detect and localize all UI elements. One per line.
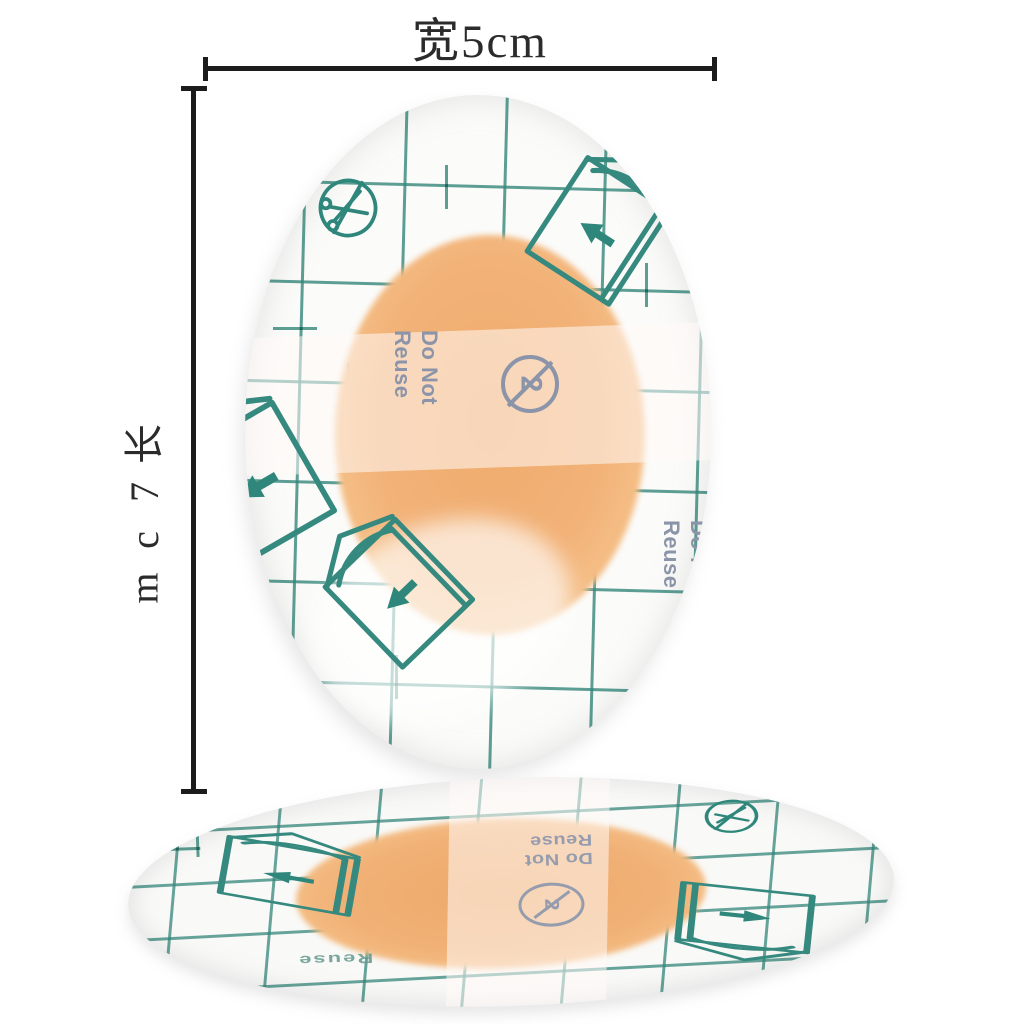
length-label-char: c bbox=[121, 531, 169, 549]
no-scissors-icon bbox=[697, 794, 766, 838]
do-not-reuse-line1: Do Not bbox=[416, 330, 443, 430]
no-reuse-slash bbox=[533, 890, 570, 919]
do-not-reuse-line2: Reuse bbox=[658, 520, 685, 620]
grid-tick bbox=[645, 263, 648, 307]
do-not-reuse-line2: Reuse bbox=[492, 830, 593, 852]
dressing-front: Do Not Reuse 2 Do Not Reuse bbox=[245, 95, 711, 769]
peel-arrow-icon bbox=[719, 908, 771, 925]
length-label-char: 7 bbox=[121, 482, 169, 502]
length-measure-line bbox=[191, 86, 196, 794]
grid-tick bbox=[273, 327, 317, 330]
do-not-reuse-label: Do Not Reuse bbox=[389, 330, 443, 430]
width-label: 宽5cm bbox=[330, 2, 630, 71]
length-label-char: m bbox=[121, 572, 169, 603]
peel-arrow-icon bbox=[379, 574, 422, 617]
dressing-back: Do Not Reuse 2 Reuse bbox=[124, 765, 897, 1020]
grid-tick bbox=[445, 165, 448, 209]
do-not-reuse-line2: Reuse bbox=[389, 330, 416, 430]
width-measure-line bbox=[203, 66, 717, 71]
length-label: 长 7 c m bbox=[116, 420, 174, 612]
no-reuse-icon: 2 bbox=[501, 355, 559, 413]
width-line-cap-left bbox=[203, 57, 208, 81]
peel-arrow-icon bbox=[245, 465, 283, 508]
peel-corner-icon bbox=[666, 878, 822, 971]
width-line-cap-right bbox=[712, 57, 717, 81]
do-not-reuse-line1: Do Not bbox=[493, 848, 594, 870]
peel-arrow-icon bbox=[262, 867, 315, 887]
do-not-reuse-line1: Do Not bbox=[685, 520, 711, 620]
length-line-cap-top bbox=[181, 86, 207, 91]
peel-arrow-icon bbox=[574, 214, 618, 254]
frame-paper-band bbox=[245, 321, 711, 477]
product-photo: 宽5cm 长 7 c m bbox=[0, 0, 1024, 1024]
length-label-char: 长 bbox=[121, 424, 169, 464]
do-not-reuse-label-clipped: Do Not Reuse bbox=[658, 520, 711, 620]
do-not-reuse-label-flipped: Do Not Reuse bbox=[492, 830, 593, 870]
